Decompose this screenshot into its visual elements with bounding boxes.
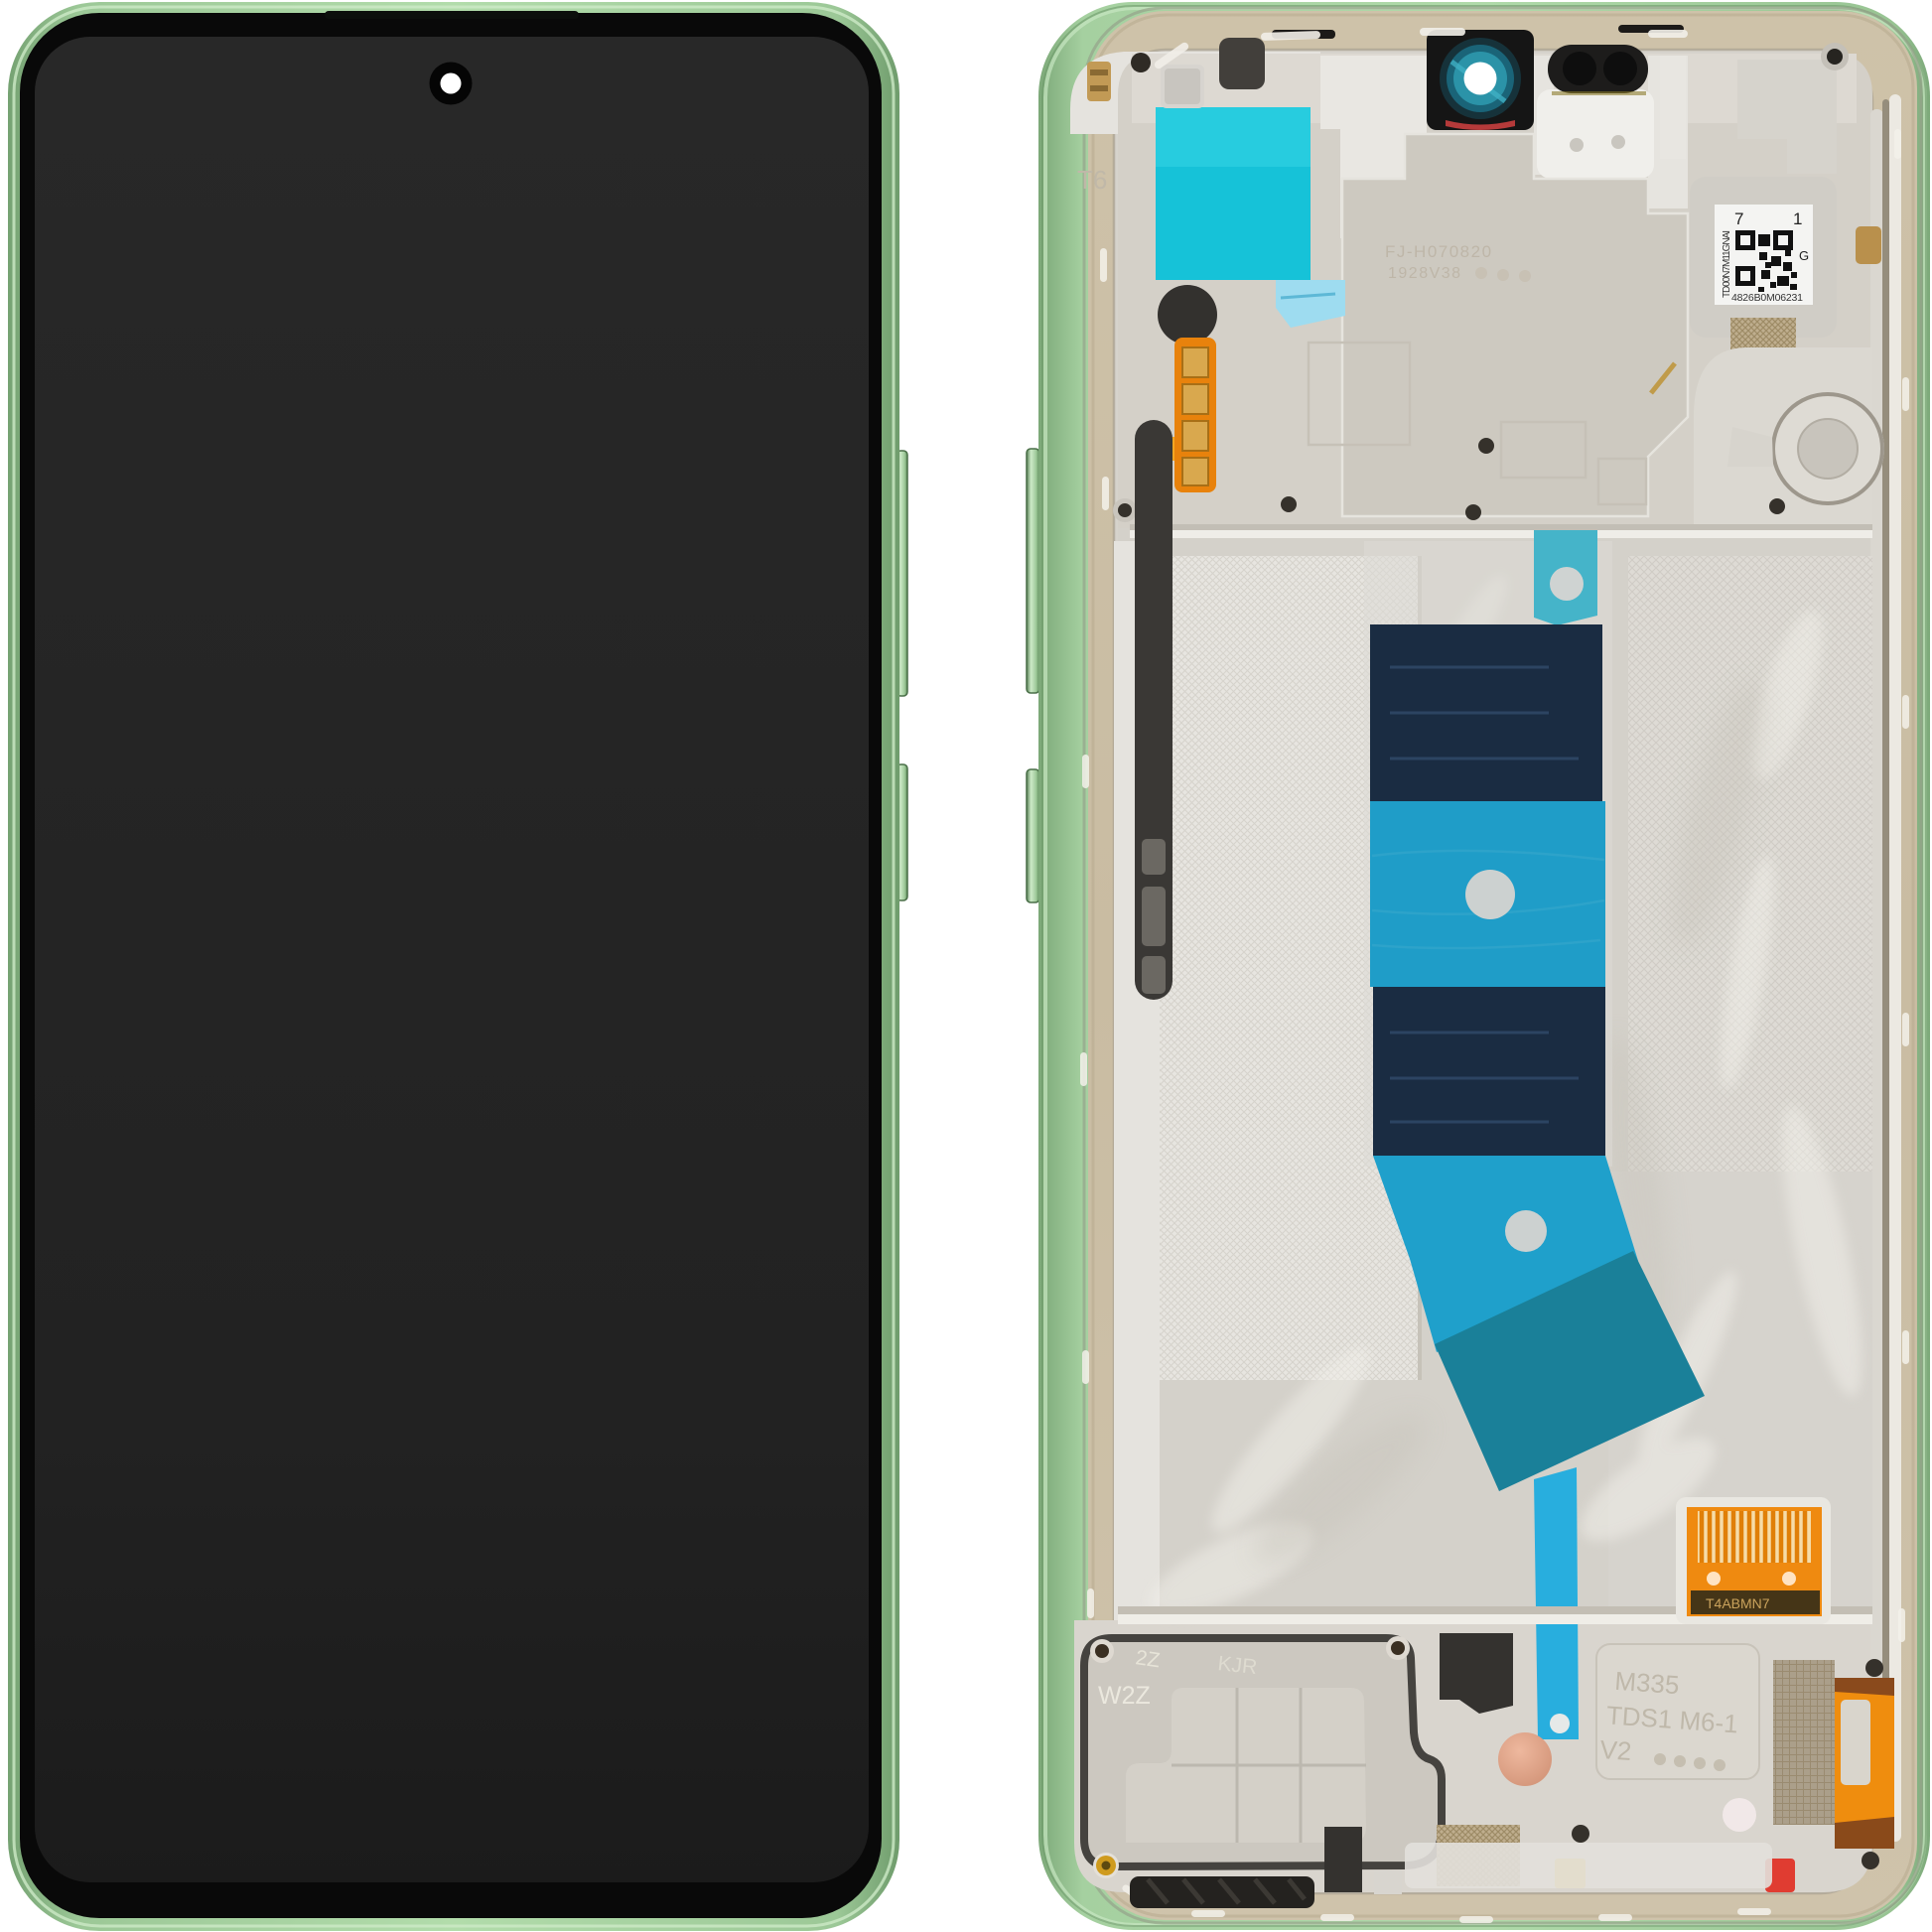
svg-text:T6: T6 xyxy=(1077,165,1107,195)
svg-text:G: G xyxy=(1799,248,1809,263)
svg-text:T4ABMN7: T4ABMN7 xyxy=(1706,1595,1770,1611)
svg-text:TD00N7M11GNAI: TD00N7M11GNAI xyxy=(1722,230,1732,298)
svg-text:4826B0M06231: 4826B0M06231 xyxy=(1731,292,1803,304)
svg-text:V2: V2 xyxy=(1599,1734,1633,1766)
svg-text:1928V38: 1928V38 xyxy=(1388,265,1462,282)
svg-text:1: 1 xyxy=(1793,209,1802,228)
svg-text:KJR: KJR xyxy=(1216,1652,1258,1679)
svg-text:W2Z: W2Z xyxy=(1098,1682,1151,1710)
svg-text:7: 7 xyxy=(1734,209,1743,228)
svg-text:M335: M335 xyxy=(1613,1666,1680,1700)
svg-text:FJ-H070820: FJ-H070820 xyxy=(1385,242,1493,261)
svg-text:2Z: 2Z xyxy=(1134,1646,1162,1672)
